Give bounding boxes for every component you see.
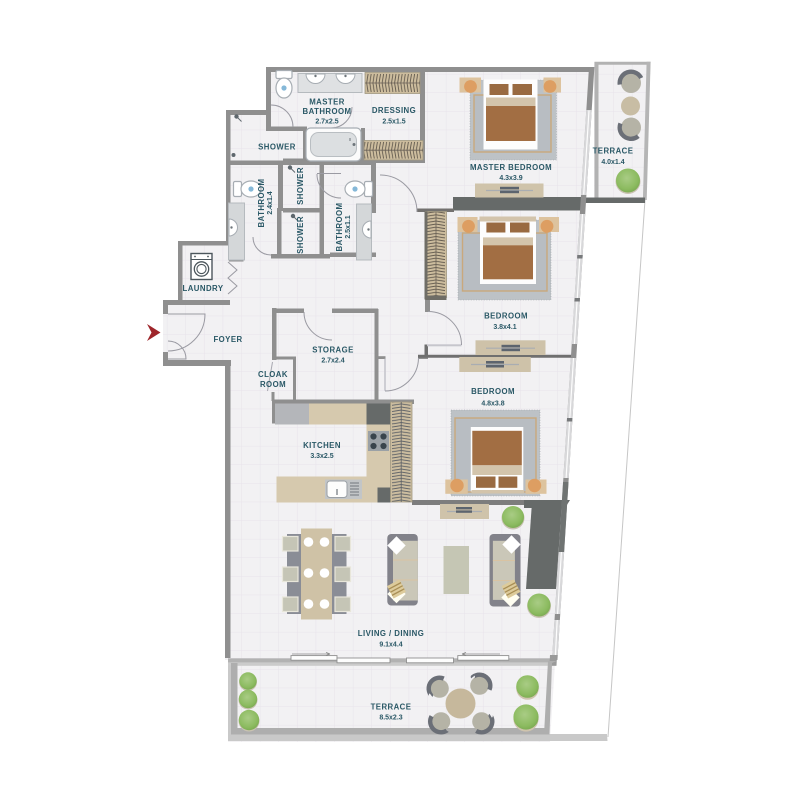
svg-text:LAUNDRY: LAUNDRY: [183, 284, 224, 293]
svg-text:3.3x2.5: 3.3x2.5: [310, 453, 333, 460]
svg-text:LIVING / DINING: LIVING / DINING: [358, 629, 425, 638]
svg-text:4.8x3.8: 4.8x3.8: [481, 401, 504, 408]
svg-text:SHOWER: SHOWER: [258, 143, 296, 152]
svg-text:KITCHEN: KITCHEN: [303, 441, 341, 450]
svg-text:STORAGE: STORAGE: [312, 346, 354, 355]
svg-text:DRESSING: DRESSING: [372, 106, 416, 115]
svg-text:BATHROOM: BATHROOM: [303, 107, 352, 116]
svg-text:BEDROOM: BEDROOM: [484, 312, 528, 321]
svg-text:2.5x1.5: 2.5x1.5: [382, 119, 405, 126]
svg-text:SHOWER: SHOWER: [296, 167, 305, 205]
svg-text:CLOAK: CLOAK: [258, 370, 288, 379]
svg-text:TERRACE: TERRACE: [593, 147, 634, 156]
svg-text:4.3x3.9: 4.3x3.9: [499, 175, 522, 182]
svg-text:2.7x2.5: 2.7x2.5: [315, 119, 338, 126]
svg-text:2.7x2.4: 2.7x2.4: [321, 358, 344, 365]
svg-text:TERRACE: TERRACE: [371, 703, 412, 712]
svg-text:BATHROOM: BATHROOM: [257, 179, 266, 228]
svg-text:2.4x1.4: 2.4x1.4: [267, 191, 274, 214]
svg-text:9.1x4.4: 9.1x4.4: [379, 642, 402, 649]
svg-text:SHOWER: SHOWER: [296, 216, 305, 254]
svg-text:BATHROOM: BATHROOM: [335, 203, 344, 252]
svg-text:MASTER: MASTER: [309, 98, 345, 107]
svg-text:MASTER BEDROOM: MASTER BEDROOM: [470, 163, 552, 172]
svg-text:8.5x2.3: 8.5x2.3: [379, 715, 402, 722]
svg-text:BEDROOM: BEDROOM: [471, 387, 515, 396]
svg-text:3.8x4.1: 3.8x4.1: [493, 324, 516, 331]
svg-text:ROOM: ROOM: [260, 380, 286, 389]
svg-text:4.0x1.4: 4.0x1.4: [601, 159, 624, 166]
svg-text:FOYER: FOYER: [213, 335, 242, 344]
svg-text:2.5x1.1: 2.5x1.1: [345, 215, 352, 238]
